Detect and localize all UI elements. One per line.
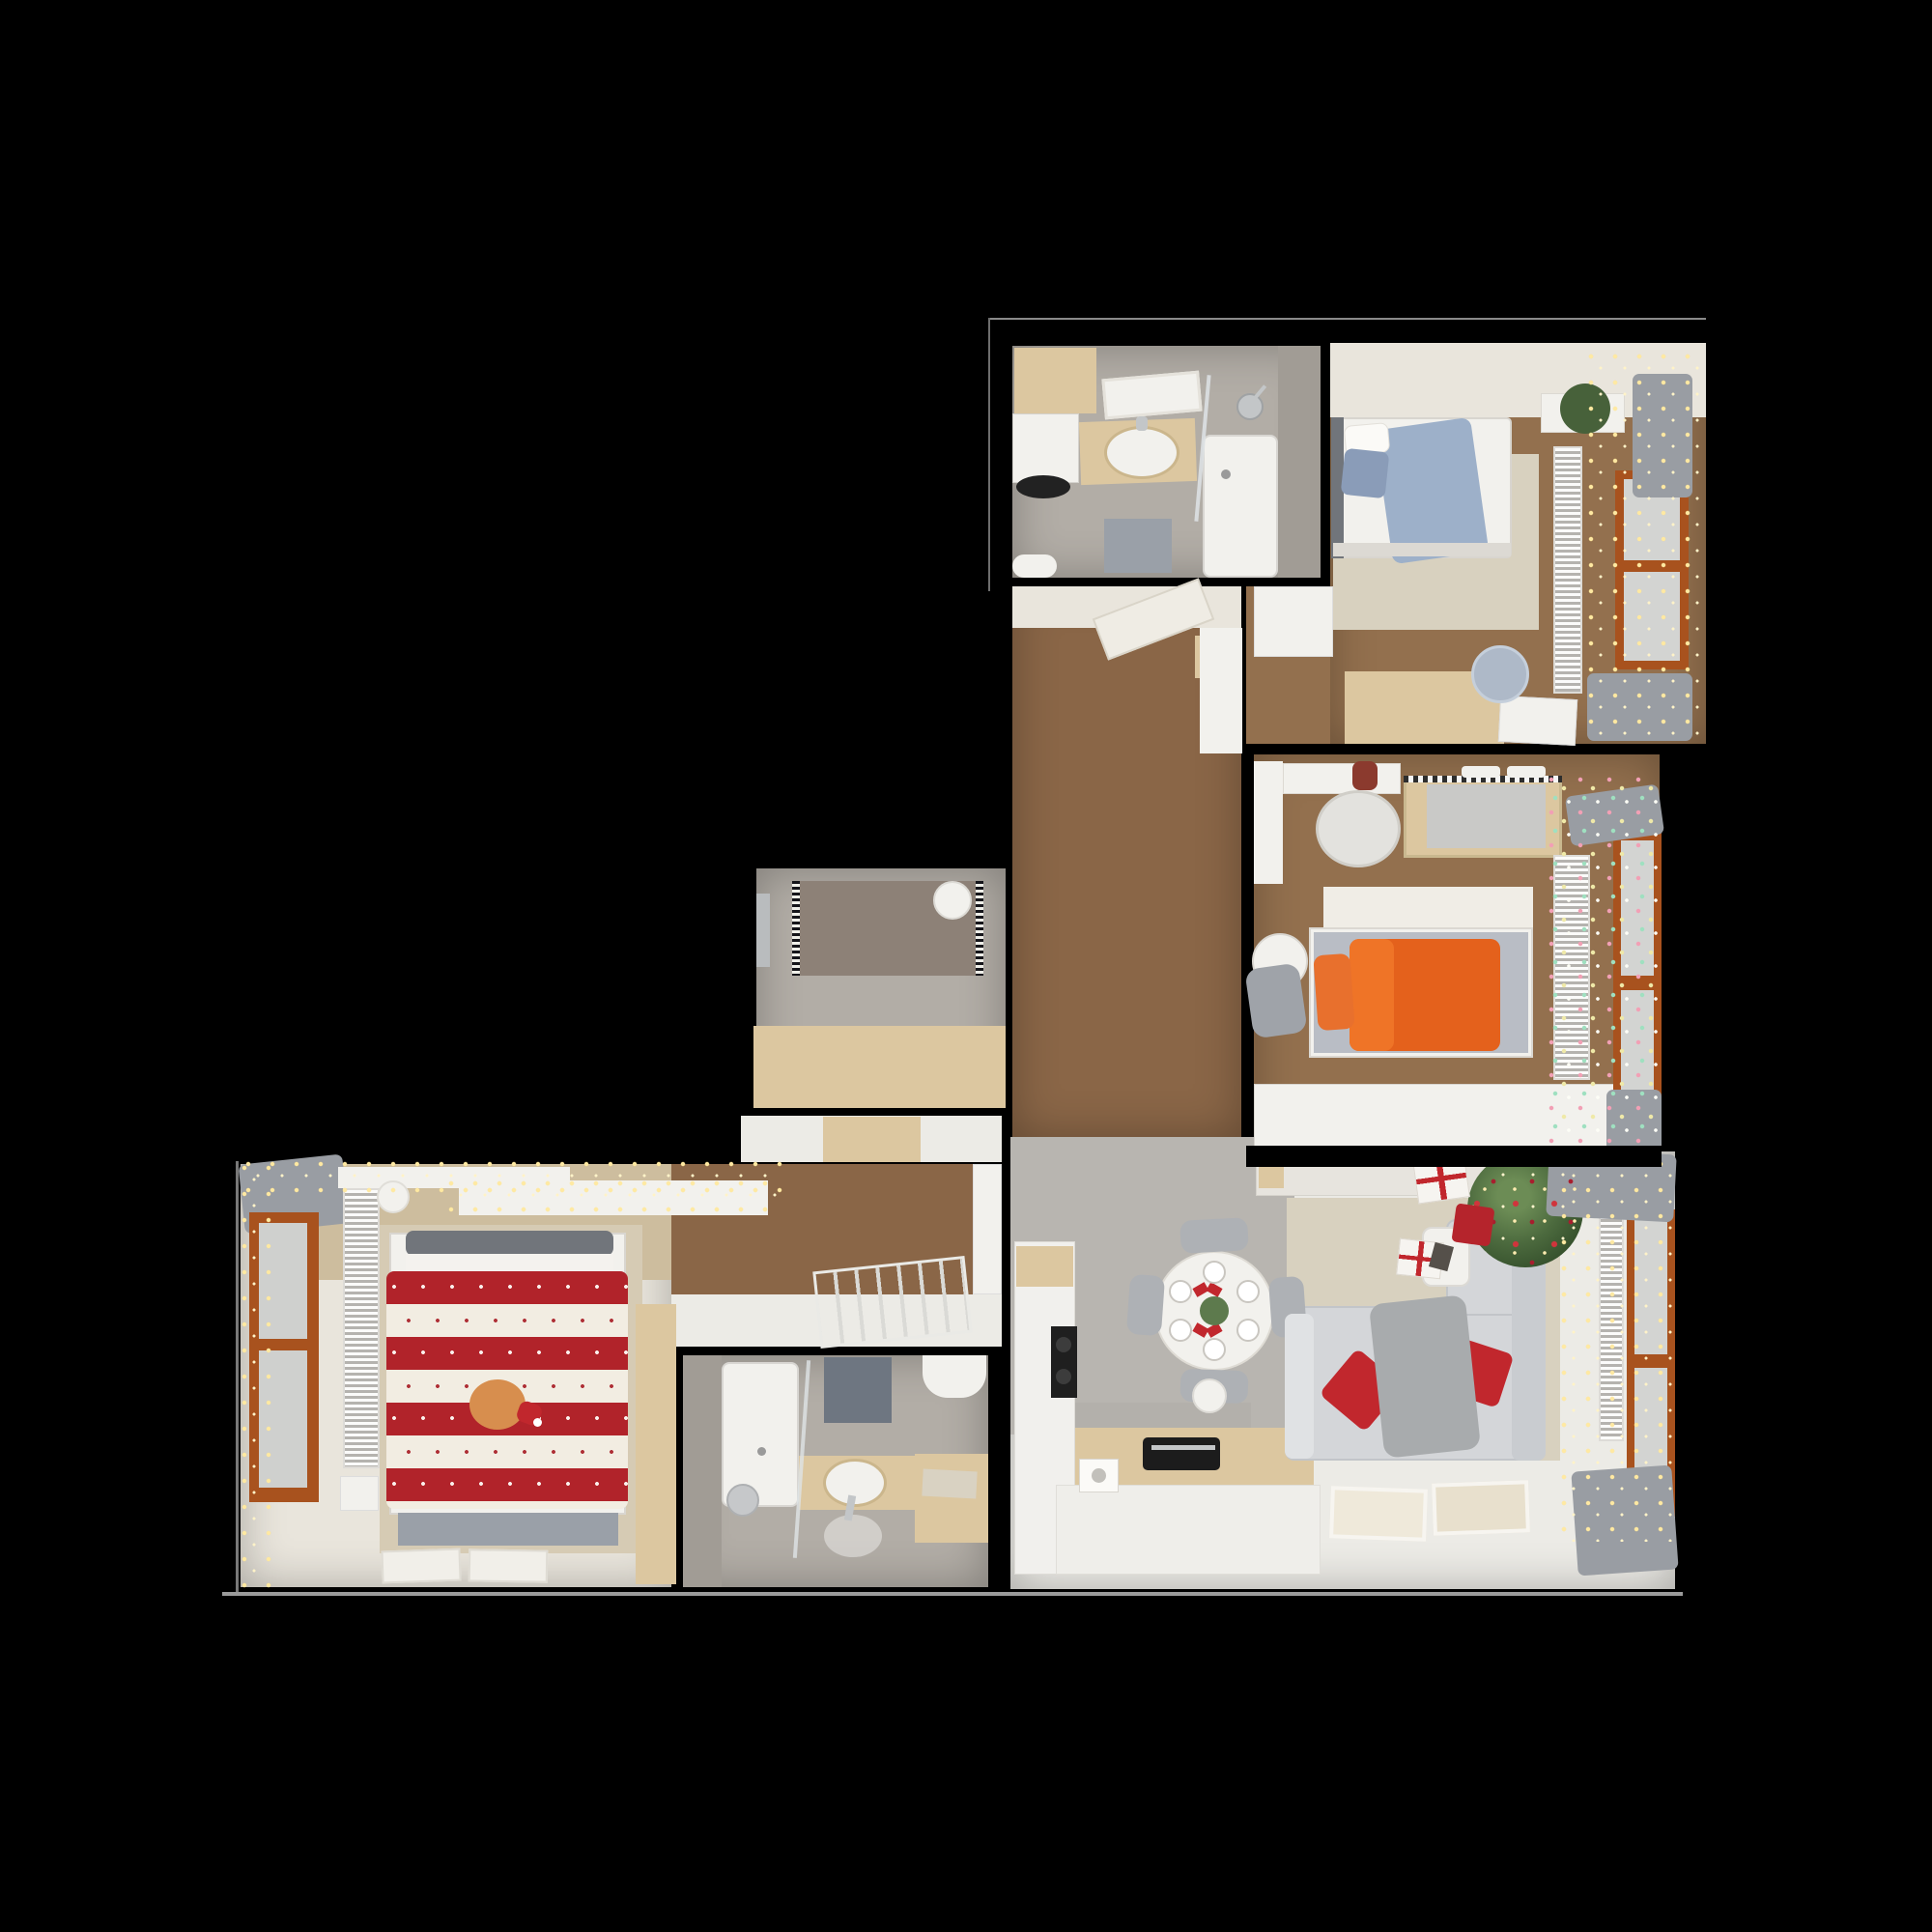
kitchen-counter-front xyxy=(1056,1485,1321,1575)
kids-reindeer-figurine xyxy=(1352,761,1378,790)
hall-wardrobe-strip xyxy=(1200,628,1242,753)
dining-chair-top xyxy=(1179,1217,1249,1254)
master-desk-paper xyxy=(1498,696,1577,746)
kitchen-backsplash xyxy=(1075,1403,1251,1428)
dining-centerpiece xyxy=(1200,1296,1229,1325)
kitchen-burner-1 xyxy=(1056,1337,1071,1352)
bath-top-faucet xyxy=(1136,416,1148,431)
second-bedroom-floor-mat-1 xyxy=(381,1548,461,1584)
bath-bottom-shower-drain xyxy=(757,1447,766,1456)
kitchen-burner-2 xyxy=(1056,1369,1071,1384)
sofa-armrest-left xyxy=(1285,1314,1314,1459)
floor-picture-2 xyxy=(1432,1480,1530,1535)
gift-box-red xyxy=(1451,1203,1494,1246)
baseboard-bottom-line xyxy=(222,1592,1683,1596)
garland-lights-bedroom-top xyxy=(241,1155,782,1200)
dining-plate-2 xyxy=(1203,1338,1226,1361)
bath-top-sink xyxy=(1104,426,1179,479)
sleeping-cat xyxy=(469,1379,526,1430)
second-bed-mattress-strip xyxy=(406,1254,613,1273)
kitchen-pendant-lamp xyxy=(1192,1378,1227,1413)
kitchen-sink-black xyxy=(1143,1437,1220,1470)
bathroom-bottom-wall-strip xyxy=(683,1355,722,1587)
kids-garland-colored-lights xyxy=(1546,773,1660,1151)
dining-plate-5 xyxy=(1236,1280,1260,1303)
master-pillow-blue xyxy=(1341,448,1390,499)
bath-bottom-toilet xyxy=(923,1355,986,1398)
second-bedroom-outer-line xyxy=(236,1161,239,1592)
bath-bottom-round-mirror xyxy=(726,1484,759,1517)
kids-desk-chair-gray xyxy=(1244,962,1307,1038)
shower-drain xyxy=(1221,469,1231,479)
second-bedroom-radiator xyxy=(343,1188,380,1468)
dressing-mirror xyxy=(756,894,770,967)
kids-pillow-orange xyxy=(1313,953,1354,1031)
bath-bottom-wall-niche xyxy=(824,1357,892,1423)
garland-lights-bedroom-left xyxy=(238,1159,274,1594)
dining-plate-3 xyxy=(1169,1280,1192,1303)
outer-wall-line-left xyxy=(988,318,990,591)
apartment-floor-plan xyxy=(0,0,1932,1932)
dining-plate-6 xyxy=(1236,1319,1260,1342)
dining-plate-1 xyxy=(1203,1261,1226,1284)
living-garland-light-curtain xyxy=(1557,1155,1675,1542)
kids-chair-white xyxy=(1316,790,1401,867)
second-bedroom-nightstand xyxy=(340,1476,379,1511)
master-radiator xyxy=(1553,446,1582,694)
bath-top-toilet xyxy=(1012,554,1057,578)
dressing-dresser xyxy=(753,1026,1006,1108)
corridor-drying-rack xyxy=(812,1256,972,1349)
shower-tray xyxy=(1203,435,1278,578)
bath-bottom-towel xyxy=(922,1469,977,1499)
master-bed-foot-fold xyxy=(1333,543,1511,556)
second-bedroom-wardrobe xyxy=(636,1304,676,1584)
second-bed-headboard xyxy=(406,1231,613,1256)
kids-wardrobe-column xyxy=(1254,761,1283,884)
washing-machine-drum xyxy=(1016,475,1070,498)
kids-crib-mattress xyxy=(1427,784,1546,848)
kids-crib-pillow-2 xyxy=(1507,766,1546,778)
bathroom-top-wall-tile-strip xyxy=(1278,346,1321,578)
master-garland-lights xyxy=(1584,348,1706,744)
kitchen-faucet-bar xyxy=(1151,1445,1215,1450)
entry-wood-mat xyxy=(823,1117,921,1162)
kids-duvet-fold xyxy=(1350,939,1394,1051)
dressing-rug-fringe-left xyxy=(792,881,800,976)
dining-chair-left xyxy=(1126,1274,1165,1336)
bath-bottom-shower-tray xyxy=(722,1362,799,1507)
master-desk-chair xyxy=(1471,645,1529,703)
kitchen-counter-cap-wood xyxy=(1016,1246,1073,1287)
kitchen-small-sink-drain xyxy=(1092,1468,1106,1483)
second-bed-bench xyxy=(398,1513,618,1546)
outer-wall-line-top xyxy=(989,318,1706,320)
dining-plate-4 xyxy=(1169,1319,1192,1342)
kids-crib-pillow-1 xyxy=(1462,766,1500,778)
corridor-door-white xyxy=(973,1164,1002,1294)
dressing-ball-lamp xyxy=(933,881,972,920)
bath-top-mirror xyxy=(1101,371,1202,420)
kids-desk xyxy=(1283,763,1401,794)
master-entry-wardrobe xyxy=(1254,586,1333,657)
bath-top-wood-cabinet xyxy=(1014,348,1096,413)
cat-santa-hat-pom xyxy=(533,1418,542,1427)
bath-bottom-sink-reflection xyxy=(824,1515,882,1557)
second-bedroom-floor-mat-2 xyxy=(469,1548,549,1582)
dressing-rug-fringe-right xyxy=(976,881,983,976)
bath-top-mat xyxy=(1104,519,1172,573)
sofa-gray-throw xyxy=(1369,1294,1481,1459)
wall-kids-living xyxy=(1246,1146,1662,1167)
floor-picture-1 xyxy=(1329,1486,1428,1541)
washing-machine xyxy=(1012,413,1079,483)
bath-bottom-towel-ladder xyxy=(915,1454,988,1543)
